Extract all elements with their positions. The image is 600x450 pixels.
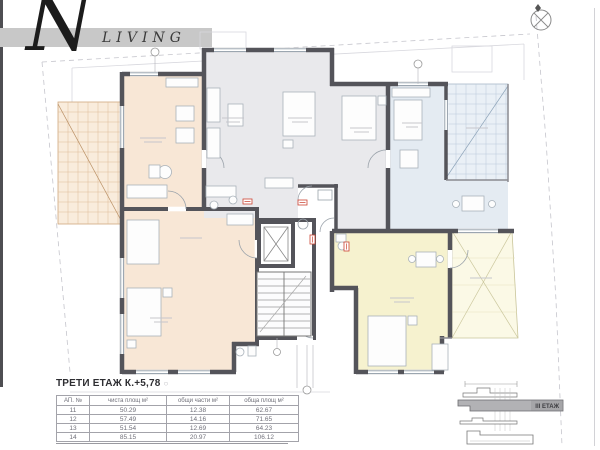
elevator [259,222,293,266]
table-row: 13 51.54 12.69 64.23 [57,424,299,433]
table-cell: 64.23 [230,424,299,433]
header-net-area: чиста площ м² [90,396,167,406]
table-cell: 11 [57,406,90,415]
table-row: 14 85.15 20.97 106.12 [57,433,299,442]
floor-title: ТРЕТИ ЕТАЖ К.+5,78○ [56,378,169,389]
table-header-row: АП. № чиста площ м² общи части м² обща п… [57,396,299,406]
terrace-blue [446,84,508,180]
table-cell: 85.15 [90,433,167,442]
table-cell: 14.16 [167,415,230,424]
table-cell: 13 [57,424,90,433]
document-page: N LIVING [0,0,600,450]
table-cell: 12.38 [167,406,230,415]
north-arrow-icon [531,4,551,30]
table-cell: 57.49 [90,415,167,424]
table-cell: 71.65 [230,415,299,424]
terrace-yellow [452,231,518,338]
table-cell: 14 [57,433,90,442]
table-cell: 51.54 [90,424,167,433]
table-underline [56,443,288,444]
table-cell: 50.29 [90,406,167,415]
table-cell: 62.67 [230,406,299,415]
table-cell: 12.69 [167,424,230,433]
table-cell: 106.12 [230,433,299,442]
table-cell: 20.97 [167,433,230,442]
terrace-peach [58,102,122,224]
section-floor-label: III ЕТАЖ [535,404,559,410]
table-row: 11 50.29 12.38 62.67 [57,406,299,415]
section-diagram: III ЕТАЖ [458,381,563,444]
header-common-parts: общи части м² [167,396,230,406]
floor-title-text: ТРЕТИ ЕТАЖ К.+5,78 [56,378,161,389]
staircase [257,272,311,336]
areas-table: АП. № чиста площ м² общи части м² обща п… [56,395,299,442]
header-apartment-no: АП. № [57,396,90,406]
header-total-area: обща площ м² [230,396,299,406]
table-row: 12 57.49 14.16 71.65 [57,415,299,424]
axis-marker-icon: ○ [164,379,169,388]
table-cell: 12 [57,415,90,424]
